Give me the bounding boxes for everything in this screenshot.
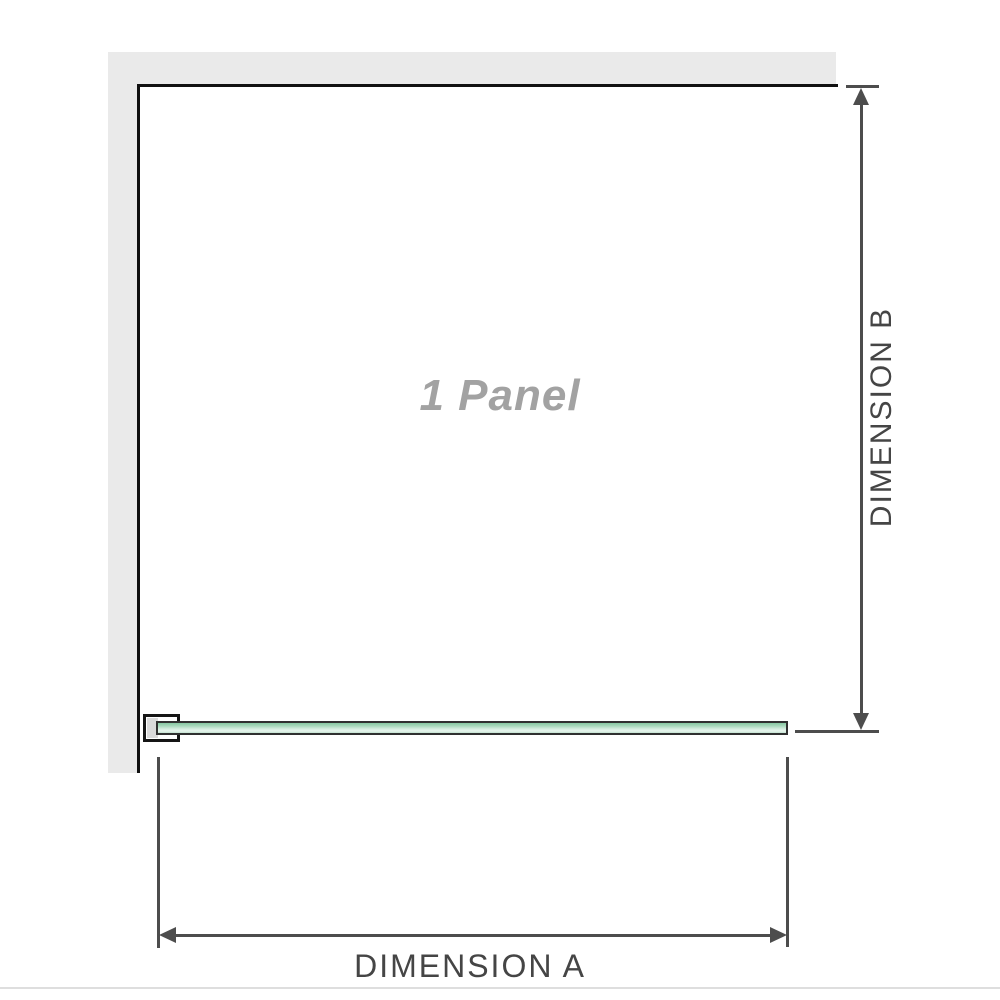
dimension-b-bottom-tick [795, 730, 879, 733]
arrow-down-icon [853, 713, 869, 730]
panel-count-label: 1 Panel [350, 368, 650, 424]
arrow-up-icon [853, 88, 869, 105]
dimension-b-label: DIMENSION B [865, 267, 899, 567]
arrow-right-icon [770, 927, 787, 943]
dimension-a-left-extension-line [157, 757, 160, 948]
glass-panel [156, 721, 788, 735]
wall-left [108, 52, 138, 773]
shower-screen-diagram: 1 Panel DIMENSION B DIMENSION A [0, 0, 1000, 1000]
dimension-a-label: DIMENSION A [320, 948, 620, 984]
dimension-b-line [860, 92, 863, 722]
wall-top [108, 52, 836, 85]
bottom-divider [0, 987, 1000, 989]
dimension-a-right-extension-line [786, 757, 789, 947]
arrow-left-icon [159, 927, 176, 943]
dimension-a-line [165, 934, 781, 937]
